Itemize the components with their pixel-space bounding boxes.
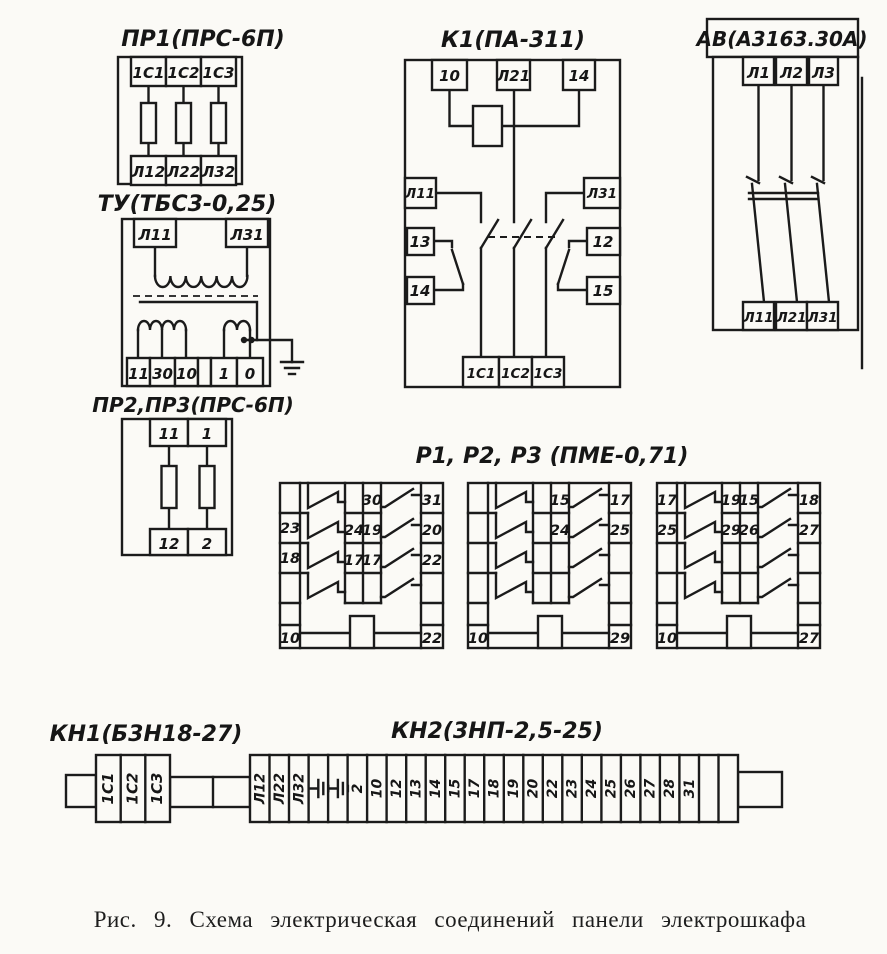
- terminal-label: 1С2: [168, 64, 200, 82]
- terminal-label: 1С2: [501, 366, 530, 382]
- terminal-label: 12: [389, 779, 405, 798]
- terminal-label: 20: [422, 523, 442, 539]
- coil-symbol: [538, 616, 562, 648]
- terminal-label: 1С1: [133, 64, 165, 82]
- terminal-label: Л12: [131, 163, 165, 181]
- terminal-label: Л31: [807, 310, 838, 326]
- terminal-label: 13: [408, 779, 424, 798]
- terminal-label: 1: [202, 425, 212, 443]
- terminal-label: 17: [362, 553, 383, 569]
- schematic-canvas: ПР1(ПРС-6П) 1С1 1С2 1С3 Л12 Л22 Л32 ТУ(Т…: [0, 0, 887, 954]
- terminal-label: Л31: [229, 226, 263, 244]
- terminal-label: Л32: [201, 163, 235, 181]
- terminal-label: 22: [422, 631, 442, 647]
- terminal-box: [198, 358, 211, 386]
- relay-p3: 17 25 19 29 15 26 18 27 10 27: [657, 483, 820, 648]
- terminal-label: 14: [569, 67, 590, 85]
- terminal-label: 22: [422, 553, 442, 569]
- terminal-label: Л21: [776, 310, 807, 326]
- terminal-label: 2: [350, 784, 366, 794]
- av-circuit-breaker: АВ(А3163.30А) Л1 Л2 Л3 Л11 Л21 Л31: [694, 19, 867, 368]
- terminal-label: 27: [643, 779, 659, 799]
- kn2-terminal-strip: КН2(3НП-2,5-25) Л12 Л22 Л32 2 10 12 13 1…: [250, 719, 782, 822]
- terminal-label: 17: [467, 779, 483, 799]
- fuse-symbol: [176, 103, 191, 143]
- terminal-label: 12: [593, 233, 614, 251]
- terminal-label: 27: [799, 631, 820, 647]
- terminal-label: 1С3: [534, 366, 563, 382]
- terminal-label: 14: [428, 779, 444, 798]
- terminal-label: 15: [550, 493, 570, 509]
- relay-group-title: Р1, Р2, Р3 (ПМЕ-0,71): [416, 444, 689, 469]
- pr2-pr3-fuse-block: ПР2,ПР3(ПРС-6П) 11 1 12 2: [92, 393, 294, 555]
- terminal-label: 15: [739, 493, 759, 509]
- terminal-label: Л2: [779, 64, 803, 82]
- terminal-label: 26: [623, 779, 639, 799]
- ground-icon: [281, 362, 303, 374]
- terminal-label: 19: [506, 779, 522, 799]
- fuse-symbol: [162, 466, 177, 508]
- terminal-label: 11: [159, 425, 180, 443]
- terminal-label: 31: [422, 493, 442, 509]
- terminal-label: 18: [280, 551, 300, 567]
- terminal-label: 1С1: [99, 773, 117, 805]
- terminal-label: 1С1: [467, 366, 496, 382]
- terminal-label: 0: [245, 365, 255, 383]
- pr1-fuse-block: ПР1(ПРС-6П) 1С1 1С2 1С3 Л12 Л22 Л32: [118, 27, 285, 185]
- terminal-label: 17: [657, 493, 678, 509]
- relay-p2: 15 24 17 25 10 29: [468, 483, 631, 648]
- terminal-label: 13: [410, 233, 431, 251]
- block-outline: [405, 60, 620, 387]
- terminal-label: 30: [152, 365, 173, 383]
- terminal-label: 15: [448, 779, 464, 799]
- terminal-label: Л31: [586, 186, 617, 202]
- fuse-symbol: [200, 466, 215, 508]
- coil-symbol: [727, 616, 751, 648]
- block-title: К1(ПА-311): [441, 28, 585, 53]
- junction-dot: [241, 337, 247, 343]
- terminal-label: 10: [369, 779, 385, 799]
- terminal-label: Л12: [252, 773, 268, 805]
- connector-bar: [170, 777, 250, 807]
- terminal-label: 2: [202, 535, 212, 553]
- figure-caption: Рис. 9. Схема электрическая соединений п…: [94, 907, 807, 932]
- terminal-label: Л3: [811, 64, 835, 82]
- terminal-label: 14: [410, 282, 431, 300]
- relay-p1: 23 18 24 17 30 19 17 31 20 22 10 22: [280, 483, 443, 648]
- coil-symbol: [350, 616, 374, 648]
- block-title: АВ(А3163.30А): [694, 27, 867, 51]
- terminal-label: 25: [604, 779, 620, 799]
- terminal-label: 31: [682, 779, 698, 798]
- terminal-label: 27: [799, 523, 820, 539]
- terminal-label: 23: [565, 779, 581, 798]
- terminal-label: 25: [610, 523, 630, 539]
- terminal-label: 17: [610, 493, 631, 509]
- block-title: ПР2,ПР3(ПРС-6П): [92, 393, 294, 417]
- terminal-label: 15: [593, 282, 614, 300]
- mount-tab: [738, 772, 782, 807]
- terminal-label: 1С3: [203, 64, 235, 82]
- k1-contactor: К1(ПА-311) 10 Л21 14: [404, 28, 620, 387]
- terminal-label: 10: [176, 365, 197, 383]
- terminal-label: 10: [468, 631, 488, 647]
- terminal-label: Л21: [496, 67, 530, 85]
- terminal-label: 20: [526, 779, 542, 799]
- mount-tab: [66, 775, 96, 807]
- terminal-label: Л22: [166, 163, 200, 181]
- terminal-label: 18: [487, 779, 503, 799]
- fuse-symbol: [141, 103, 156, 143]
- terminal-label: Л1: [746, 64, 770, 82]
- terminal-label: 18: [799, 493, 819, 509]
- block-title: ТУ(ТБС3-0,25): [98, 192, 277, 217]
- kn1-terminal-strip: КН1(Б3Н18-27) 1С1 1С2 1С3: [50, 722, 250, 822]
- terminal-label: Л11: [404, 186, 435, 202]
- terminal-label: Л11: [743, 310, 774, 326]
- coil-symbol: [473, 106, 502, 146]
- terminal-label: 1: [219, 365, 229, 383]
- scanned-schematic-page: ПР1(ПРС-6П) 1С1 1С2 1С3 Л12 Л22 Л32 ТУ(Т…: [0, 0, 887, 954]
- fuse-symbol: [211, 103, 226, 143]
- block-title: ПР1(ПРС-6П): [121, 27, 285, 52]
- terminal-label: 1С2: [124, 773, 142, 805]
- terminal-label: 1С3: [148, 773, 166, 805]
- tu-transformer: ТУ(ТБС3-0,25) Л11 Л31: [98, 192, 303, 386]
- terminal-label: 11: [128, 365, 149, 383]
- terminal-label: 30: [362, 493, 382, 509]
- terminal-label: 24: [550, 523, 570, 539]
- terminal-label: Л32: [291, 773, 307, 805]
- terminal-label: 24: [584, 779, 600, 798]
- junction-dot: [248, 337, 254, 343]
- terminal-label: 28: [662, 779, 678, 799]
- terminal-label: 26: [739, 523, 759, 539]
- terminal-label: 22: [545, 779, 561, 798]
- terminal-label: 10: [439, 67, 460, 85]
- terminal-label: 23: [280, 521, 300, 537]
- block-title: КН2(3НП-2,5-25): [391, 719, 603, 744]
- terminal-label: 19: [362, 523, 382, 539]
- terminal-label: 10: [657, 631, 677, 647]
- block-title: КН1(Б3Н18-27): [50, 722, 243, 747]
- terminal-label: 10: [280, 631, 300, 647]
- terminal-label: Л11: [137, 226, 171, 244]
- terminal-label: 29: [610, 631, 630, 647]
- terminal-label: 25: [657, 523, 677, 539]
- terminal-label: Л22: [272, 773, 288, 805]
- terminal-label: 12: [159, 535, 180, 553]
